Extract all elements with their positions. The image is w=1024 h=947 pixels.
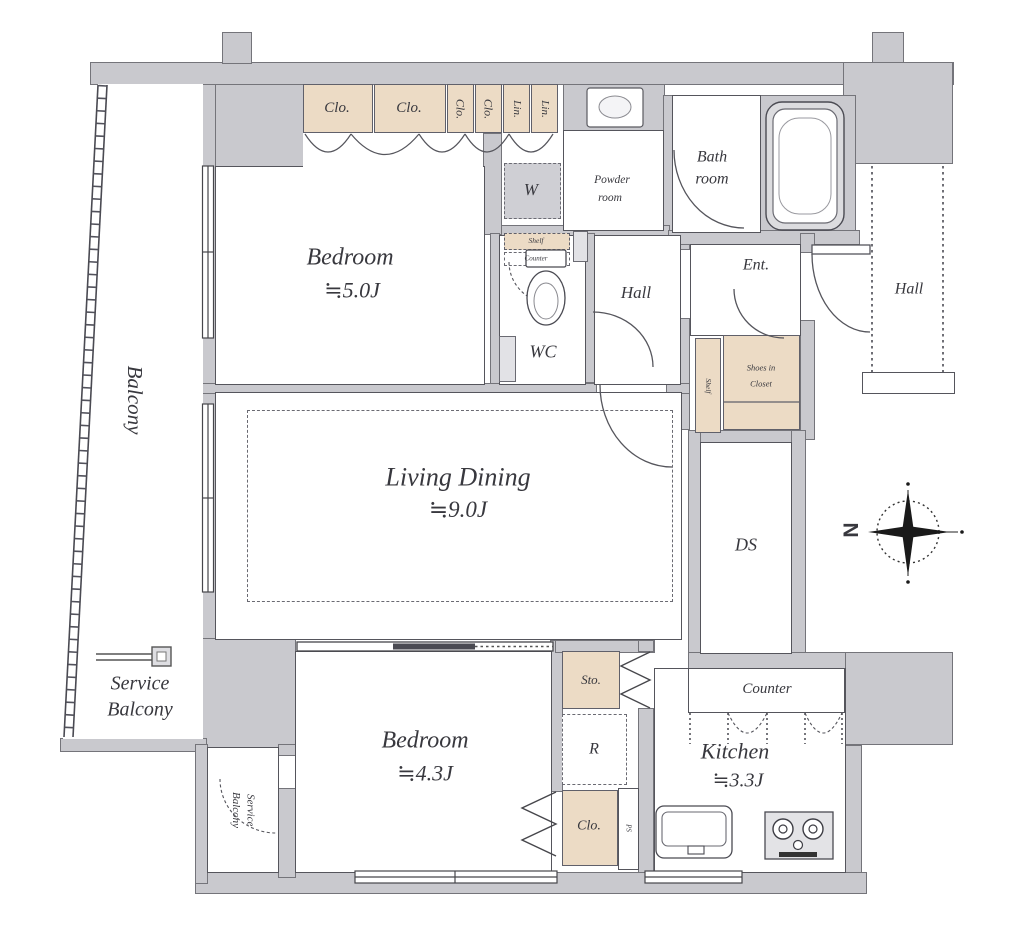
bath-room-label-line2: room (695, 172, 728, 189)
powder-room-label-line1: Powder (594, 174, 630, 186)
wall-segment (638, 708, 654, 874)
compass-icon (868, 482, 964, 584)
wall-segment (800, 233, 815, 253)
refrigerator-label: R (589, 742, 599, 759)
closet-bottom-label: Clo. (577, 820, 601, 835)
wall-segment (760, 95, 856, 235)
closet-top-4-label: Clo. (482, 99, 495, 119)
bedroom-top-area: ≒5.0J (324, 278, 380, 301)
living-dining-area: ≒9.0J (429, 498, 487, 522)
wall-segment (60, 738, 207, 752)
closet-top-3-label: Clo. (454, 99, 467, 119)
linen-front-strip (502, 133, 563, 163)
wall-segment (800, 320, 815, 440)
wall-segment (202, 638, 296, 748)
closet-top-2-label: Clo. (396, 101, 421, 117)
duct-space-label: DS (735, 536, 757, 555)
wall-segment (278, 788, 296, 878)
wall-segment (638, 640, 654, 652)
storage-label: Sto. (581, 673, 601, 687)
bedroom-bottom-area: ≒4.3J (397, 761, 453, 784)
wall-segment (278, 744, 296, 756)
sliding-door (297, 642, 553, 651)
powder-room-label-line2: room (598, 192, 622, 204)
closet-front-strip (303, 133, 483, 171)
wall-pillar (872, 32, 904, 64)
service-balcony-small-line2: Balcony (229, 792, 243, 828)
hall-outer-step (862, 372, 955, 394)
bedroom-bottom-label: Bedroom (381, 728, 468, 753)
wall-segment (843, 62, 953, 164)
wc-shelf-label: Shelf (529, 237, 544, 245)
kitchen-area: ≒3.3J (713, 771, 764, 792)
wc-side-unit (573, 231, 588, 262)
wall-segment (483, 133, 502, 235)
hall-inner (594, 235, 681, 385)
wall-segment (845, 745, 862, 875)
wc-label: WC (530, 343, 557, 362)
kitchen-label: Kitchen (701, 739, 769, 762)
hall-inner-label: Hall (621, 284, 651, 302)
entry-shelf-label: Shelf (704, 379, 712, 394)
bath-room-label-line1: Bath (697, 150, 727, 167)
washer-label: W (524, 181, 538, 199)
closet-top-1-label: Clo. (324, 101, 349, 117)
linen-1-label: Lin. (510, 100, 522, 117)
compass-north-label: N (841, 522, 863, 537)
pipe-space-label: PS (624, 824, 631, 832)
wall-segment (215, 84, 305, 170)
counter-label: Counter (742, 682, 791, 698)
storage-folding-door (621, 652, 650, 708)
service-balcony-label-line1: Service (111, 674, 170, 695)
linen-2-label: Lin. (538, 100, 550, 117)
wall-segment (688, 652, 855, 669)
hall-outer-label: Hall (895, 282, 923, 299)
floor-plan: Balcony Service Balcony Service Balcony … (0, 0, 1024, 947)
wall-pillar (222, 32, 252, 64)
shoes-closet-label-line1: Shoes in (747, 364, 776, 373)
wc-counter-label: Counter (525, 255, 548, 262)
wall-segment (791, 430, 806, 668)
entrance-label: Ent. (743, 258, 769, 275)
wall-segment (90, 62, 954, 85)
bedroom-top-label: Bedroom (306, 245, 393, 270)
service-balcony-small-label: Service Balcony (229, 792, 258, 828)
wall-segment (563, 84, 665, 131)
wc-cabinet (499, 336, 516, 382)
service-balcony-small-line1: Service (243, 792, 257, 828)
balcony-label: Balcony (124, 366, 146, 435)
bedroom-top (215, 166, 485, 385)
outer-hall-boundary (872, 166, 943, 372)
shoes-closet-label-line2: Closet (750, 380, 772, 389)
living-dining-label: Living Dining (385, 463, 530, 490)
entrance-door (812, 245, 870, 332)
service-balcony-label-line2: Balcony (107, 700, 173, 721)
wall-segment (845, 652, 953, 745)
